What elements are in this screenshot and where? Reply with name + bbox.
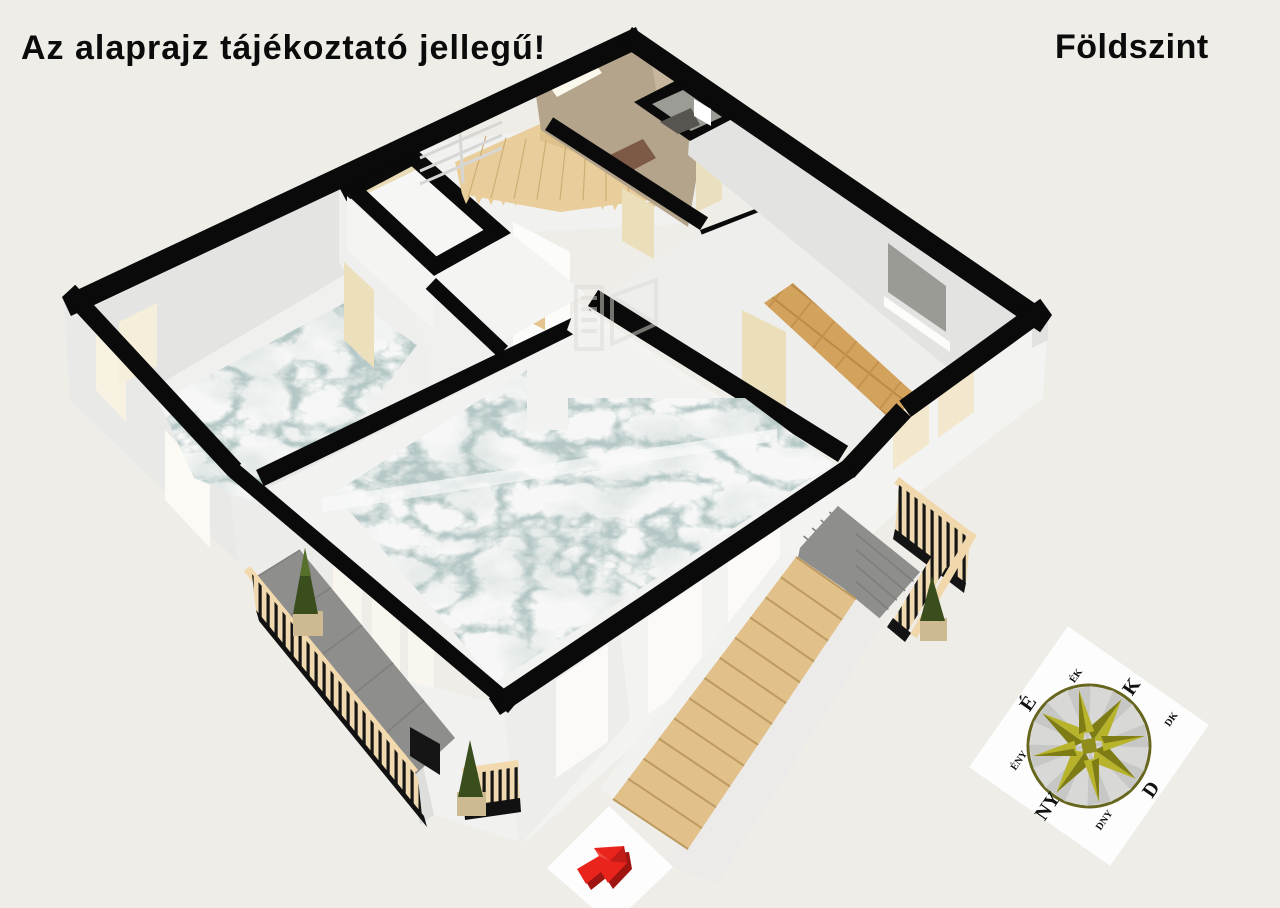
svg-text:Az alaprajz tájékoztató jelleg: Az alaprajz tájékoztató jellegű! — [21, 29, 546, 67]
svg-text:Földszint: Földszint — [1055, 28, 1209, 66]
